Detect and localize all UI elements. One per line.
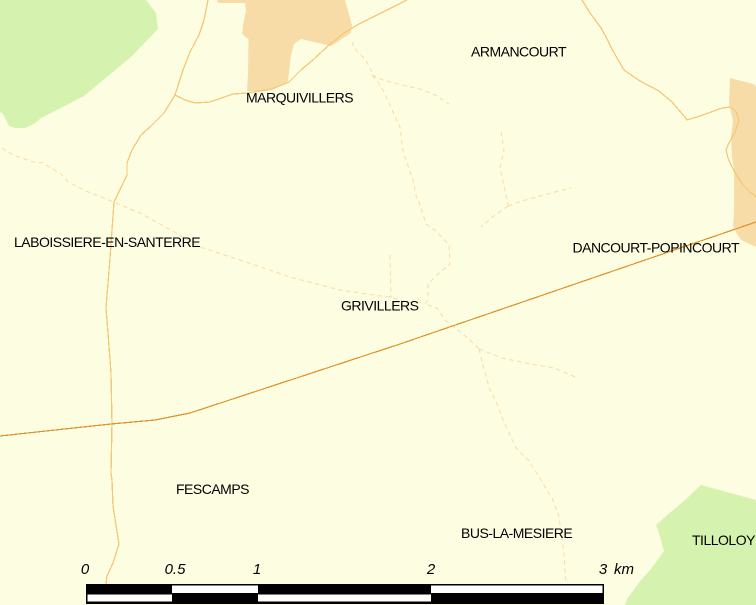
svg-text:0.5: 0.5	[165, 561, 187, 578]
svg-text:1: 1	[253, 561, 261, 578]
svg-text:BUS-LA-MESIERE: BUS-LA-MESIERE	[461, 525, 572, 541]
svg-text:km: km	[614, 561, 634, 578]
svg-text:LABOISSIERE-EN-SANTERRE: LABOISSIERE-EN-SANTERRE	[14, 234, 200, 250]
svg-text:0: 0	[81, 561, 90, 578]
svg-text:DANCOURT-POPINCOURT: DANCOURT-POPINCOURT	[573, 240, 741, 256]
svg-text:ARMANCOURT: ARMANCOURT	[471, 44, 567, 60]
svg-text:GRIVILLERS: GRIVILLERS	[341, 298, 419, 314]
svg-text:FESCAMPS: FESCAMPS	[176, 481, 249, 497]
svg-text:3: 3	[599, 561, 608, 578]
svg-text:MARQUIVILLERS: MARQUIVILLERS	[246, 90, 353, 106]
svg-text:TILLOLOY: TILLOLOY	[692, 532, 756, 548]
svg-text:2: 2	[426, 561, 436, 578]
